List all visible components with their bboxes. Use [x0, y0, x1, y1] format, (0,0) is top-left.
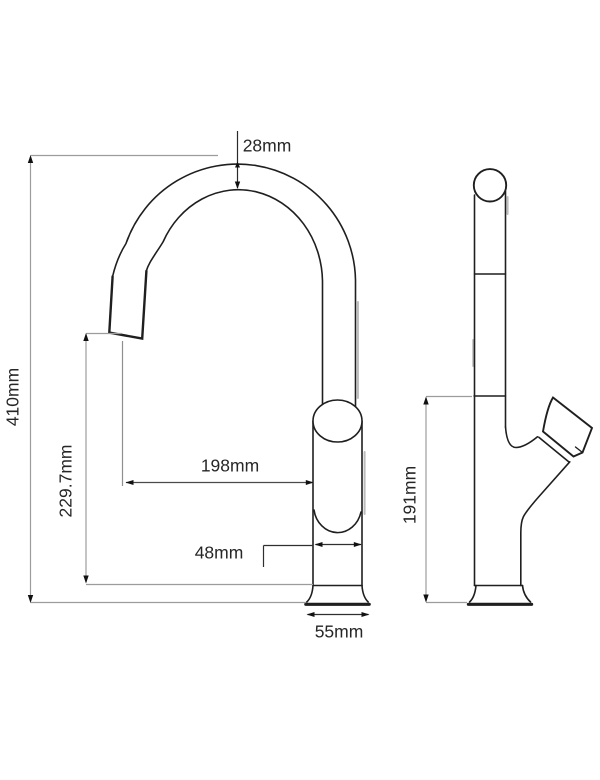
dim-label-total-height: 410mm — [4, 368, 22, 426]
front-view-drawing — [109, 164, 369, 604]
spout-inner-edge — [146, 190, 322, 420]
dimension-side-height — [423, 397, 472, 603]
body-shell-bottom-arc — [314, 510, 361, 533]
dimension-base-width — [307, 612, 370, 617]
faucet-dimension-drawing — [0, 0, 600, 780]
side-base-right — [523, 586, 531, 603]
base-flange-left — [307, 586, 313, 603]
side-shading-lines — [473, 197, 507, 366]
drawing-canvas: 28mm 410mm 229.7mm 198mm 48mm 55mm 191mm — [0, 0, 600, 780]
dim-label-spout-reach: 198mm — [201, 457, 259, 475]
dim-label-spout-diameter: 28mm — [243, 137, 292, 155]
dim-label-spout-tip-height: 229.7mm — [57, 445, 75, 518]
base-flange-right — [362, 586, 368, 603]
side-top-cap-circle — [474, 169, 506, 201]
dim-label-side-height: 191mm — [401, 466, 419, 524]
dim-label-base-width: 55mm — [315, 623, 364, 641]
handle-saddle-curve — [506, 427, 538, 448]
side-view-drawing — [468, 169, 592, 604]
spout-outer-edge — [113, 164, 356, 420]
dimension-total-height — [28, 155, 306, 603]
spray-nozzle-head — [109, 271, 146, 339]
dimension-spout-diameter — [235, 131, 240, 189]
handle-mount-edge — [521, 462, 570, 586]
dim-label-body-width: 48mm — [195, 544, 244, 562]
handle-cap-notch — [576, 447, 583, 453]
side-base-left — [470, 586, 476, 603]
body-top-joint-ellipse — [313, 400, 362, 442]
